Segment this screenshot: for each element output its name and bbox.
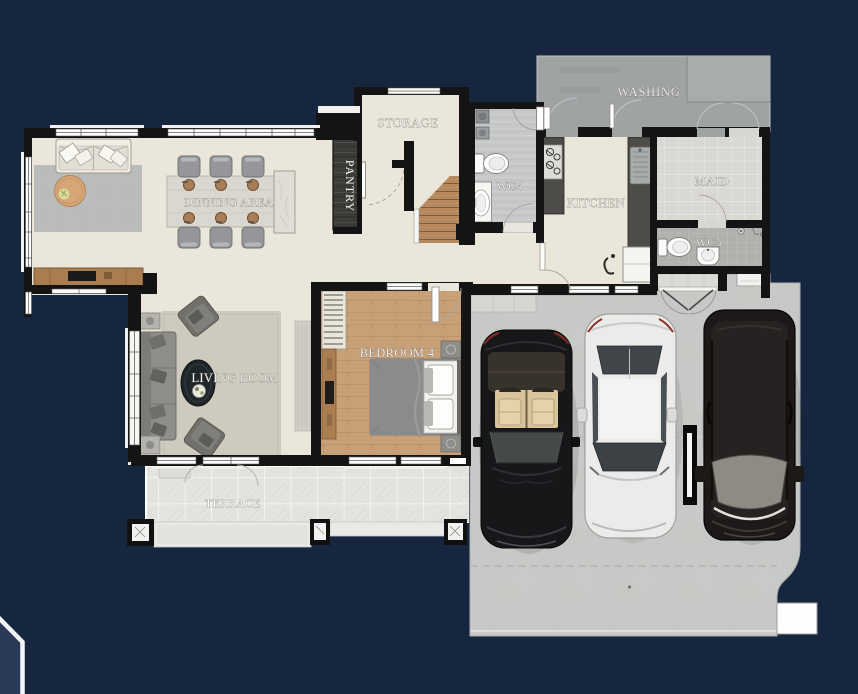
svg-text:LIVING ROOM: LIVING ROOM bbox=[192, 371, 279, 385]
svg-text:DINNING AREA: DINNING AREA bbox=[184, 195, 274, 209]
svg-text:KITCHEN: KITCHEN bbox=[567, 196, 625, 210]
svg-text:WC4: WC4 bbox=[497, 179, 524, 193]
svg-text:MAID: MAID bbox=[695, 174, 729, 188]
svg-text:STORAGE: STORAGE bbox=[378, 116, 439, 130]
svg-text:WC5: WC5 bbox=[696, 235, 723, 249]
svg-text:TERRACE: TERRACE bbox=[205, 498, 261, 510]
svg-text:WASHING: WASHING bbox=[617, 85, 680, 99]
svg-text:BEDROOM 4: BEDROOM 4 bbox=[360, 346, 435, 360]
svg-text:PANTRY: PANTRY bbox=[343, 160, 357, 212]
